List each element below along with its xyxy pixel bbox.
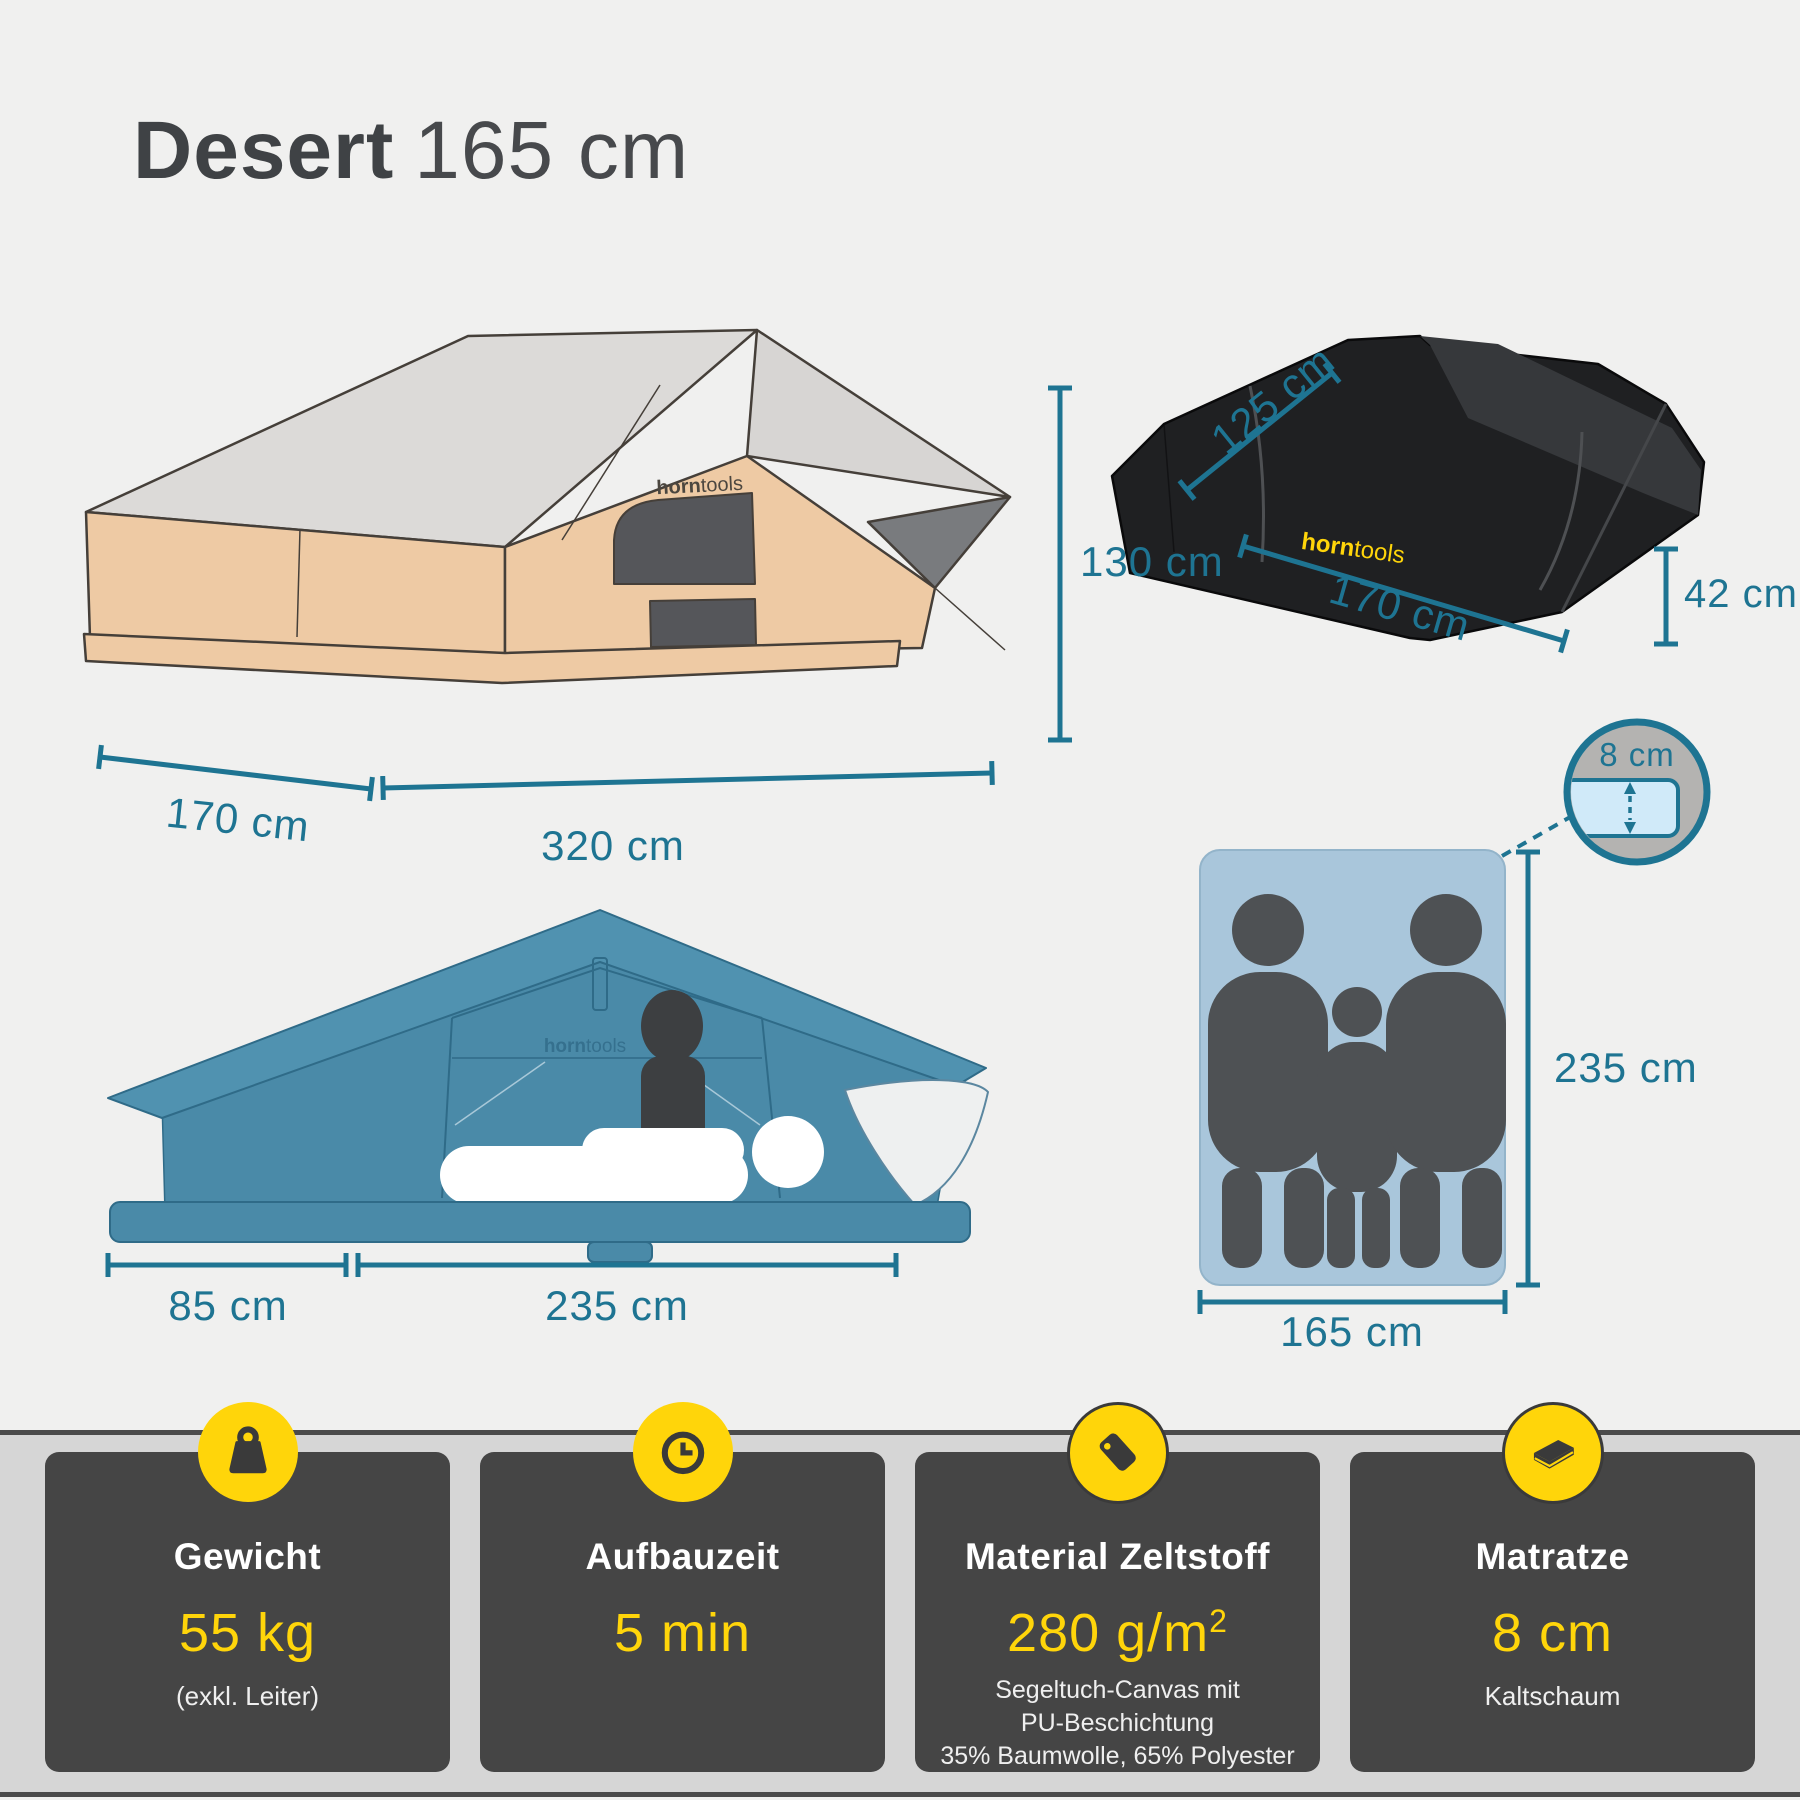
mattress-icon [1502,1402,1604,1504]
horntools-logo: horntools [656,473,744,500]
product-size: 165 cm [414,105,689,196]
spec-note: (exkl. Leiter) [45,1680,450,1713]
weight-icon [198,1402,298,1502]
spec-title: Aufbauzeit [480,1536,885,1578]
spec-card-weight: Gewicht 55 kg (exkl. Leiter) [45,1452,450,1772]
spec-card-setup-time: Aufbauzeit 5 min [480,1452,885,1772]
spec-card-mattress: Matratze 8 cm Kaltschaum [1350,1452,1755,1772]
spec-title: Matratze [1350,1536,1755,1578]
clock-icon [633,1402,733,1502]
tent-front-illustration: horntools [108,910,988,1262]
mattress-top-illustration [1200,850,1506,1285]
dim-side-base-right-label: 320 cm [508,822,718,870]
dim-front-base-right-label: 235 cm [512,1282,722,1330]
spec-value: 55 kg [45,1602,450,1664]
dim-mattress-thickness-label: 8 cm [1562,736,1712,774]
spec-value: 280 g/m2 [915,1602,1320,1664]
tag-icon [1067,1402,1169,1504]
spec-title: Material Zeltstoff [915,1536,1320,1578]
dim-mattress-length-label: 235 cm [1554,1044,1698,1092]
tent-side-illustration: horntools [84,330,1010,683]
page-title: Desert165 cm [133,104,689,198]
dim-front-base-left-label: 85 cm [123,1282,333,1330]
dim-mattress-width-label: 165 cm [1247,1308,1457,1356]
dim-packed-height-label: 42 cm [1684,572,1798,617]
spec-value: 8 cm [1350,1602,1755,1664]
product-infographic: horntools horntools horntools [0,0,1800,1800]
horntools-logo: horntools [544,1036,626,1057]
dim-side-height-label: 130 cm [1080,538,1224,586]
spec-note: Segeltuch-Canvas mit PU-Beschichtung 35%… [915,1674,1320,1773]
spec-card-material: Material Zeltstoff 280 g/m2 Segeltuch-Ca… [915,1452,1320,1772]
product-name: Desert [133,105,394,196]
spec-title: Gewicht [45,1536,450,1578]
spec-value: 5 min [480,1602,885,1664]
spec-note: Kaltschaum [1350,1680,1755,1713]
